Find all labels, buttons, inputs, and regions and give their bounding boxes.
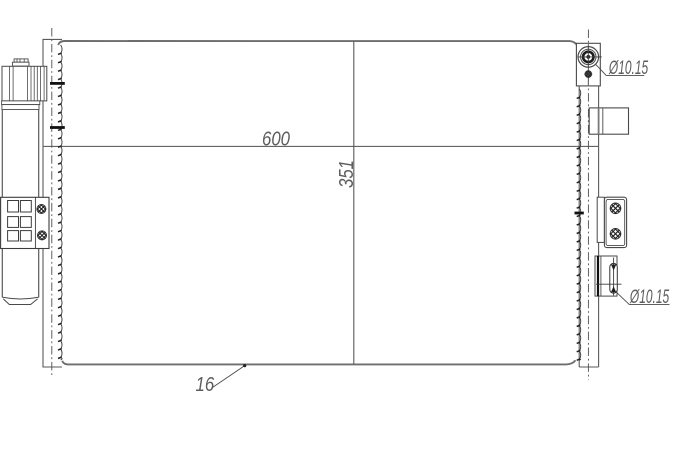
svg-text:351: 351 <box>334 160 357 188</box>
svg-text:16: 16 <box>196 372 215 395</box>
svg-text:600: 600 <box>262 127 291 150</box>
